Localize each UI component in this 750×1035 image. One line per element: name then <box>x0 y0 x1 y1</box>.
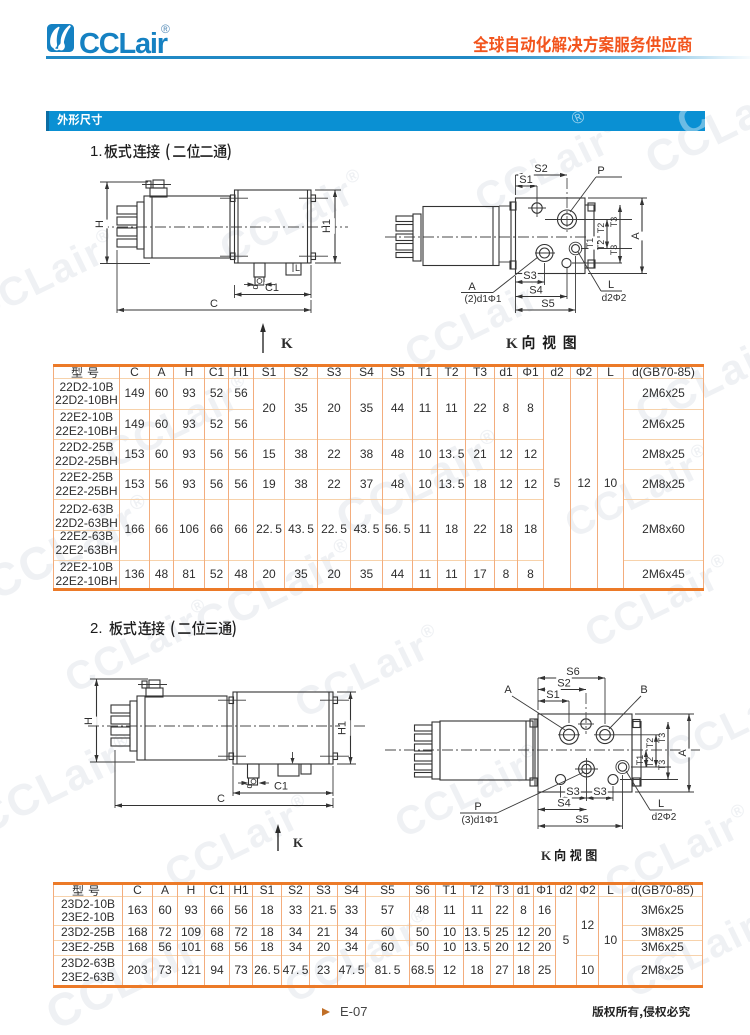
svg-text:T3: T3 <box>609 217 619 228</box>
svg-text:K: K <box>281 336 293 352</box>
svg-text:S1: S1 <box>546 689 559 701</box>
svg-text:A: A <box>630 232 642 240</box>
svg-text:d2Φ2: d2Φ2 <box>602 293 627 304</box>
svg-text:T2: T2 <box>645 738 655 749</box>
svg-text:S2: S2 <box>534 163 547 175</box>
svg-text:S4: S4 <box>529 285 542 297</box>
svg-text:H1: H1 <box>337 721 349 735</box>
svg-text:L: L <box>608 279 614 291</box>
svg-text:P: P <box>597 165 604 177</box>
svg-text:C1: C1 <box>274 781 288 793</box>
svg-text:(2)d1Φ1: (2)d1Φ1 <box>465 294 502 305</box>
svg-text:d2Φ2: d2Φ2 <box>652 812 677 823</box>
svg-text:T2: T2 <box>596 240 606 251</box>
svg-text:S3: S3 <box>523 270 536 282</box>
svg-text:T3: T3 <box>657 733 667 744</box>
svg-text:T3: T3 <box>657 760 667 771</box>
svg-text:T2: T2 <box>645 757 655 768</box>
svg-text:S4: S4 <box>557 798 570 810</box>
svg-text:A: A <box>504 684 512 696</box>
svg-text:S1: S1 <box>519 174 532 186</box>
svg-text:L: L <box>295 263 300 273</box>
svg-text:S6: S6 <box>566 666 579 678</box>
svg-text:K: K <box>293 835 304 850</box>
svg-text:T3: T3 <box>609 245 619 256</box>
svg-text:H1: H1 <box>321 219 333 233</box>
svg-text:d: d <box>250 284 260 289</box>
svg-text:T1: T1 <box>635 755 645 766</box>
svg-text:T1: T1 <box>585 238 595 249</box>
svg-text:C: C <box>210 298 218 310</box>
svg-text:B: B <box>640 684 647 696</box>
svg-text:S3: S3 <box>566 786 579 798</box>
svg-text:S3: S3 <box>593 786 606 798</box>
svg-text:S2: S2 <box>557 678 570 690</box>
svg-text:C: C <box>217 793 225 805</box>
svg-text:P: P <box>474 801 481 813</box>
svg-text:A: A <box>677 749 689 757</box>
svg-text:S5: S5 <box>575 814 588 826</box>
svg-text:K: K <box>506 336 518 352</box>
svg-text:H: H <box>94 220 106 228</box>
svg-text:H: H <box>83 717 95 725</box>
svg-text:K: K <box>541 848 552 863</box>
svg-text:(3)d1Φ1: (3)d1Φ1 <box>462 815 499 826</box>
svg-text:L: L <box>658 798 664 810</box>
svg-text:S5: S5 <box>541 298 554 310</box>
svg-text:T2: T2 <box>596 223 606 234</box>
svg-text:A: A <box>468 281 476 293</box>
svg-text:d: d <box>244 783 254 788</box>
